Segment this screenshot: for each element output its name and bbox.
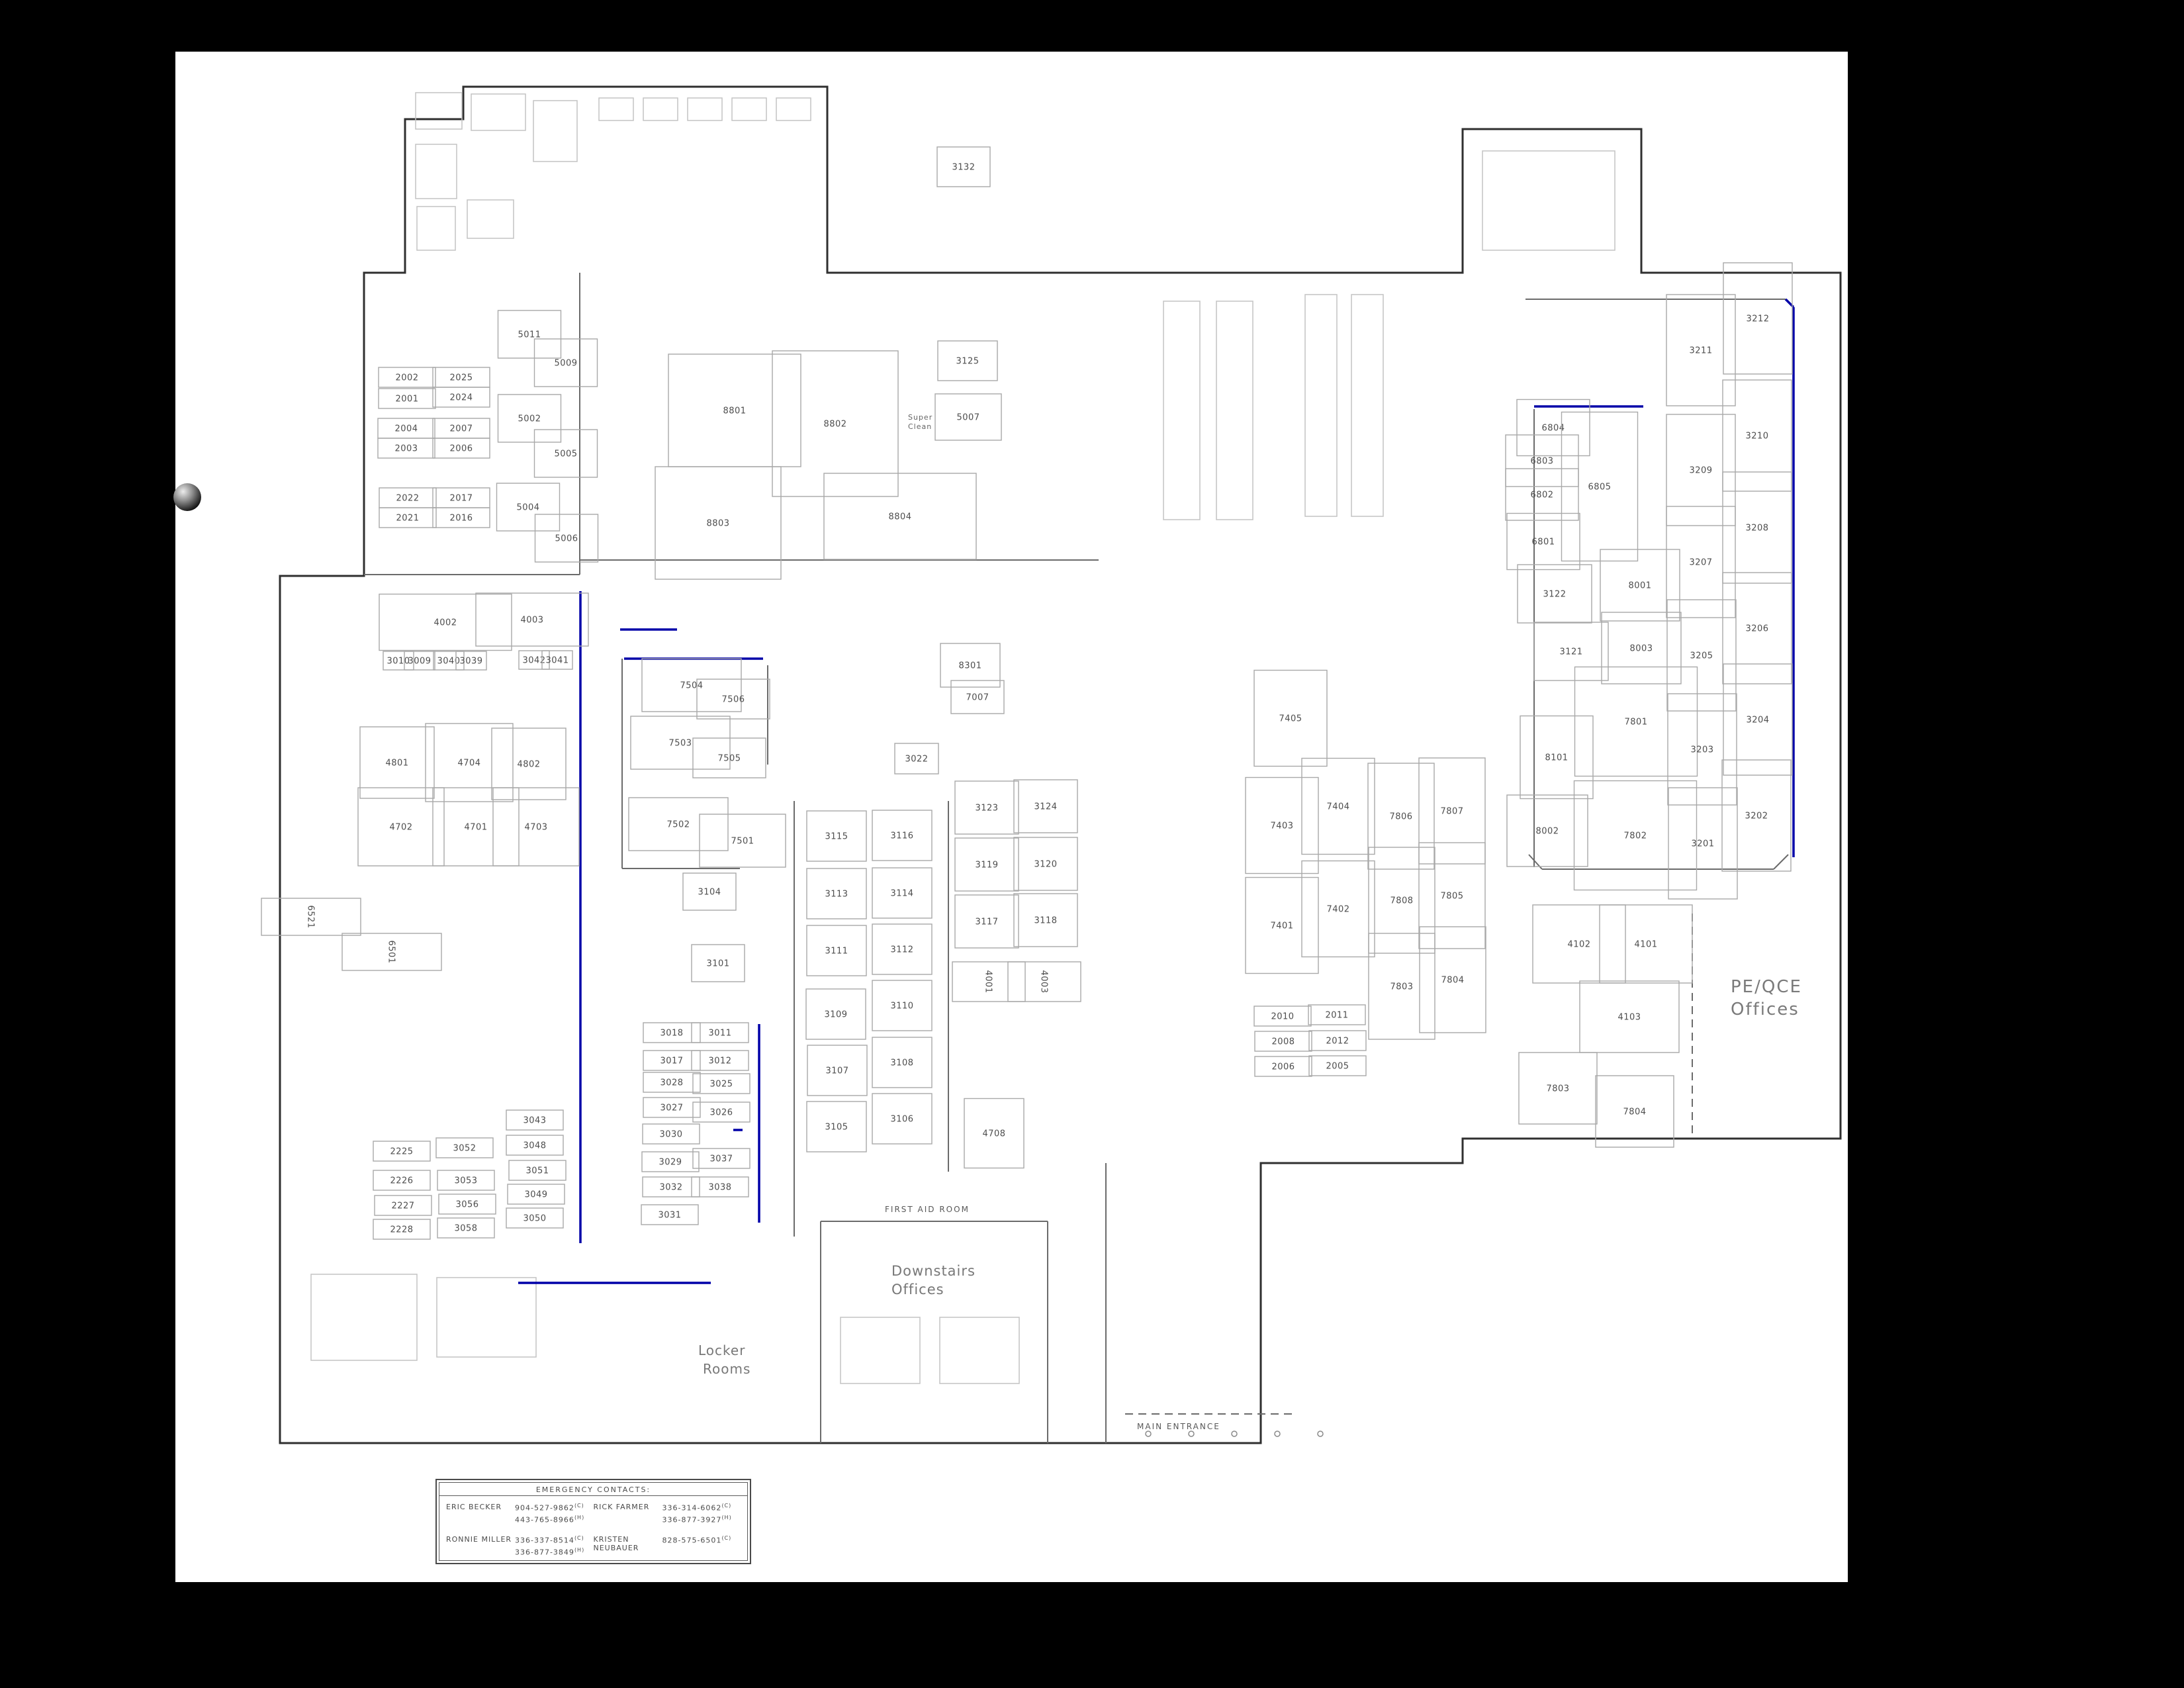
room-label: 3105 xyxy=(825,1123,848,1133)
room-label: 3121 xyxy=(1559,647,1582,657)
door-hardware-circle xyxy=(1189,1431,1194,1436)
room-label: 4704 xyxy=(457,759,480,769)
room-label: 2005 xyxy=(1326,1062,1349,1072)
room-label: 3022 xyxy=(905,755,928,765)
contact-phone: 904-527-9862(C) xyxy=(515,1501,584,1513)
room-label: 3025 xyxy=(709,1080,733,1090)
door-hardware-circle xyxy=(1318,1431,1323,1436)
room-label: 2002 xyxy=(395,373,418,383)
room-label: 3114 xyxy=(890,889,913,899)
room-label: 4801 xyxy=(385,759,408,769)
room-label: 2008 xyxy=(1271,1037,1295,1047)
room-label: 3017 xyxy=(660,1056,683,1066)
room-label: 7804 xyxy=(1623,1107,1646,1117)
room-label: 3043 xyxy=(523,1116,546,1126)
room-label: 3202 xyxy=(1745,812,1768,821)
room-label: 2225 xyxy=(390,1147,413,1157)
room-label: 3106 xyxy=(890,1115,913,1125)
room-label: 7804 xyxy=(1441,976,1464,986)
room-label: 5011 xyxy=(518,330,541,340)
label-super-clean-2: Clean xyxy=(908,422,932,431)
room-label: 6521 xyxy=(306,905,316,928)
label-first-aid-room: FIRST AID ROOM xyxy=(885,1205,970,1214)
room-label: 3109 xyxy=(824,1010,847,1020)
room-label: 8101 xyxy=(1545,753,1568,763)
emergency-contacts-title: EMERGENCY CONTACTS: xyxy=(439,1483,747,1496)
room-label: 7801 xyxy=(1624,718,1647,727)
room-label: 2025 xyxy=(449,373,473,383)
room-label: 2011 xyxy=(1325,1011,1348,1021)
room-label: 7805 xyxy=(1440,892,1463,902)
room-label: 4701 xyxy=(464,823,487,833)
room-label: 3110 xyxy=(890,1002,913,1011)
room-label: 4703 xyxy=(524,823,547,833)
room-label: 3210 xyxy=(1745,432,1768,442)
room-label: 2021 xyxy=(396,514,419,524)
room-label: 8801 xyxy=(723,406,746,416)
room-label: 3124 xyxy=(1034,802,1057,812)
room-label: 7803 xyxy=(1390,982,1413,992)
room-label: 4101 xyxy=(1634,940,1657,950)
room-label: 8002 xyxy=(1535,827,1559,837)
room-label: 7505 xyxy=(717,754,741,764)
label-super-clean-1: Super xyxy=(908,413,933,422)
detail-outline xyxy=(416,144,457,199)
detail-outline xyxy=(776,98,811,120)
room-label: 3104 xyxy=(698,888,721,898)
detail-outline xyxy=(311,1274,417,1360)
room-label: 2016 xyxy=(449,514,473,524)
room-label: 4001 xyxy=(983,970,993,993)
room-label: 4708 xyxy=(982,1129,1005,1139)
room-label: 8001 xyxy=(1628,581,1651,591)
detail-outline xyxy=(471,94,525,130)
contact-phone: 828-575-6501(C) xyxy=(662,1534,732,1546)
room-label: 3212 xyxy=(1746,314,1769,324)
room-label: 3009 xyxy=(408,657,431,667)
contact-name: RICK FARMER xyxy=(594,1501,662,1524)
floor-plan-svg: 2002200120042003202220212025202420072006… xyxy=(0,0,2184,1688)
room-label: 3050 xyxy=(523,1214,546,1224)
room-label: 3048 xyxy=(523,1141,546,1151)
room-label: 7806 xyxy=(1389,812,1412,822)
room-label: 7803 xyxy=(1546,1084,1569,1094)
door-hardware-circle xyxy=(1146,1431,1151,1436)
room-label: 3122 xyxy=(1543,590,1566,600)
room-label: 3010 xyxy=(387,657,410,667)
room-label: 2228 xyxy=(390,1225,413,1235)
room-label: 2004 xyxy=(394,424,418,434)
room-label: 3118 xyxy=(1034,916,1057,926)
room-label: 2022 xyxy=(396,494,419,504)
label-downstairs-offices-2: Offices xyxy=(891,1282,944,1297)
room-label: 4702 xyxy=(389,823,412,833)
room-label: 3204 xyxy=(1746,716,1769,726)
room-label: 3041 xyxy=(545,656,569,666)
contact-name: RONNIE MILLER xyxy=(446,1534,515,1557)
interior-wall xyxy=(1774,855,1788,869)
room-label: 3058 xyxy=(454,1224,477,1234)
room-label: 7504 xyxy=(680,681,703,691)
room-label: 3120 xyxy=(1034,860,1057,870)
sphere-marker-icon xyxy=(173,483,201,511)
room-label: 3011 xyxy=(708,1029,731,1039)
room-label: 2006 xyxy=(449,444,473,454)
door-hardware-circle xyxy=(1232,1431,1237,1436)
room-label: 3051 xyxy=(525,1166,549,1176)
room-label: 3101 xyxy=(706,959,729,969)
room-label: 3201 xyxy=(1691,839,1714,849)
room-label: 4802 xyxy=(517,760,540,770)
room-label: 7405 xyxy=(1279,714,1302,724)
room-label: 7402 xyxy=(1326,905,1349,915)
room-label: 4002 xyxy=(433,618,457,628)
room-label: 7808 xyxy=(1390,896,1413,906)
room-label: 3111 xyxy=(825,947,848,957)
contact-phone: 336-877-3927(H) xyxy=(662,1513,732,1525)
detail-outline xyxy=(1163,301,1200,520)
detail-outline xyxy=(1351,295,1383,516)
detail-outline xyxy=(841,1317,920,1383)
room-label: 3203 xyxy=(1690,745,1713,755)
room-label: 3207 xyxy=(1689,558,1712,568)
room-label: 5002 xyxy=(518,414,541,424)
room-label: 2024 xyxy=(449,393,473,403)
room-label: 3012 xyxy=(708,1056,731,1066)
room-label: 3206 xyxy=(1745,624,1768,634)
room-label: 4003 xyxy=(1039,970,1049,993)
room-label: 5007 xyxy=(956,413,979,423)
room-label: 3028 xyxy=(660,1078,683,1088)
room-label: 4102 xyxy=(1567,940,1590,950)
label-peqce-offices-2: Offices xyxy=(1731,1000,1799,1019)
room-label: 2001 xyxy=(395,395,418,404)
room-label: 4103 xyxy=(1617,1013,1641,1023)
label-main-entrance: MAIN ENTRANCE xyxy=(1137,1422,1220,1431)
room-label: 7802 xyxy=(1623,831,1647,841)
emergency-contacts-inner-border: EMERGENCY CONTACTS: ERIC BECKER 904-527-… xyxy=(439,1482,748,1561)
room-label: 7007 xyxy=(966,693,989,703)
detail-outline xyxy=(437,1278,536,1357)
room-label: 3038 xyxy=(708,1183,731,1193)
label-downstairs-offices-1: Downstairs xyxy=(891,1263,976,1279)
room-label: 3123 xyxy=(975,804,998,814)
detail-outline xyxy=(643,98,678,120)
building-outline xyxy=(280,87,1841,1443)
room-label: 3037 xyxy=(709,1154,733,1164)
contact-row: KRISTEN NEUBAUER 828-575-6501(C) xyxy=(594,1534,741,1557)
label-locker-rooms-2: Rooms xyxy=(703,1361,751,1377)
room-label: 3117 xyxy=(975,917,998,927)
room-label: 3208 xyxy=(1745,524,1768,534)
room-label: 3029 xyxy=(659,1158,682,1168)
room-label: 6801 xyxy=(1531,538,1555,547)
contact-row: ERIC BECKER 904-527-9862(C) 443-765-8966… xyxy=(446,1501,594,1524)
room-label: 2006 xyxy=(1271,1062,1295,1072)
room-label: 3205 xyxy=(1690,651,1713,661)
room-label: 3209 xyxy=(1689,466,1712,476)
room-label: 3119 xyxy=(975,861,998,870)
room-label: 6803 xyxy=(1530,457,1553,467)
room-label: 2226 xyxy=(390,1176,413,1186)
room-label: 3026 xyxy=(709,1108,733,1118)
room-label: 4003 xyxy=(520,616,543,626)
detail-outline xyxy=(940,1317,1019,1383)
room-label: 6501 xyxy=(387,940,396,963)
room-label: 8802 xyxy=(823,420,846,430)
room-label: 8003 xyxy=(1629,644,1653,654)
contact-phone: 336-337-8514(C) xyxy=(515,1534,584,1546)
detail-outline xyxy=(417,207,455,250)
room-label: 2227 xyxy=(391,1201,414,1211)
detail-outline xyxy=(1305,295,1337,516)
room-label: 7501 xyxy=(731,837,754,847)
room-label: 7807 xyxy=(1440,807,1463,817)
room-label: 2007 xyxy=(449,424,473,434)
room-label: 7404 xyxy=(1326,802,1349,812)
room-label: 3049 xyxy=(524,1190,547,1200)
room-label: 3115 xyxy=(825,832,848,842)
room-label: 2003 xyxy=(394,444,418,454)
room-label: 7503 xyxy=(668,739,692,749)
room-label: 3132 xyxy=(952,163,975,173)
contact-row: RICK FARMER 336-314-6062(C) 336-877-3927… xyxy=(594,1501,741,1524)
emergency-contacts-table: EMERGENCY CONTACTS: ERIC BECKER 904-527-… xyxy=(435,1479,751,1564)
room-label: 8804 xyxy=(888,512,911,522)
room-label: 3053 xyxy=(454,1176,477,1186)
room-label: 8301 xyxy=(958,661,981,671)
detail-outline xyxy=(688,98,722,120)
contact-phone: 336-877-3849(H) xyxy=(515,1546,584,1558)
room-label: 3108 xyxy=(890,1058,913,1068)
screenshot-stage: 2002200120042003202220212025202420072006… xyxy=(0,0,2184,1688)
detail-outline xyxy=(1482,151,1615,250)
room-label: 2017 xyxy=(449,494,473,504)
room-label: 8803 xyxy=(706,519,729,529)
room-label: 5004 xyxy=(516,503,539,513)
room-label: 7403 xyxy=(1270,821,1293,831)
detail-outline xyxy=(732,98,766,120)
room-label: 5005 xyxy=(554,449,577,459)
contact-name: KRISTEN NEUBAUER xyxy=(594,1534,662,1557)
detail-outline xyxy=(1216,301,1253,520)
room-label: 3125 xyxy=(956,357,979,367)
room-label: 7506 xyxy=(721,695,745,705)
room-label: 3030 xyxy=(659,1130,682,1140)
room-label: 2010 xyxy=(1271,1012,1294,1022)
contact-name: ERIC BECKER xyxy=(446,1501,515,1524)
room-label: 7401 xyxy=(1270,921,1293,931)
room-label: 6805 xyxy=(1588,483,1611,492)
room-label: 3116 xyxy=(890,831,913,841)
emergency-contacts-body: ERIC BECKER 904-527-9862(C) 443-765-8966… xyxy=(439,1496,747,1558)
contact-phone: 443-765-8966(H) xyxy=(515,1513,584,1525)
detail-outline xyxy=(467,200,514,238)
detail-outline xyxy=(599,98,633,120)
room-label: 2012 xyxy=(1326,1037,1349,1047)
detail-outline xyxy=(416,93,462,129)
contact-row: RONNIE MILLER 336-337-8514(C) 336-877-38… xyxy=(446,1534,594,1557)
label-locker-rooms-1: Locker xyxy=(698,1342,745,1358)
room-label: 3040 xyxy=(437,657,460,667)
room-label: 7502 xyxy=(666,820,690,830)
contact-phone: 336-314-6062(C) xyxy=(662,1501,732,1513)
label-peqce-offices-1: PE/QCE xyxy=(1731,977,1802,997)
room-label: 3032 xyxy=(659,1183,682,1193)
room-label: 3039 xyxy=(459,657,482,667)
room-label: 3112 xyxy=(890,945,913,955)
room-label: 5009 xyxy=(554,359,577,369)
room-label: 6802 xyxy=(1530,491,1553,500)
door-hardware-circle xyxy=(1275,1431,1280,1436)
room-label: 3211 xyxy=(1689,346,1712,356)
room-label: 5006 xyxy=(555,534,578,544)
room-label: 3031 xyxy=(658,1211,681,1221)
detail-outline xyxy=(533,101,577,162)
room-label: 3056 xyxy=(455,1200,478,1210)
room-label: 3027 xyxy=(660,1103,683,1113)
room-label: 3113 xyxy=(825,890,848,900)
room-label: 3018 xyxy=(660,1029,683,1039)
room-label: 3107 xyxy=(825,1066,848,1076)
room-label: 3052 xyxy=(453,1144,476,1154)
